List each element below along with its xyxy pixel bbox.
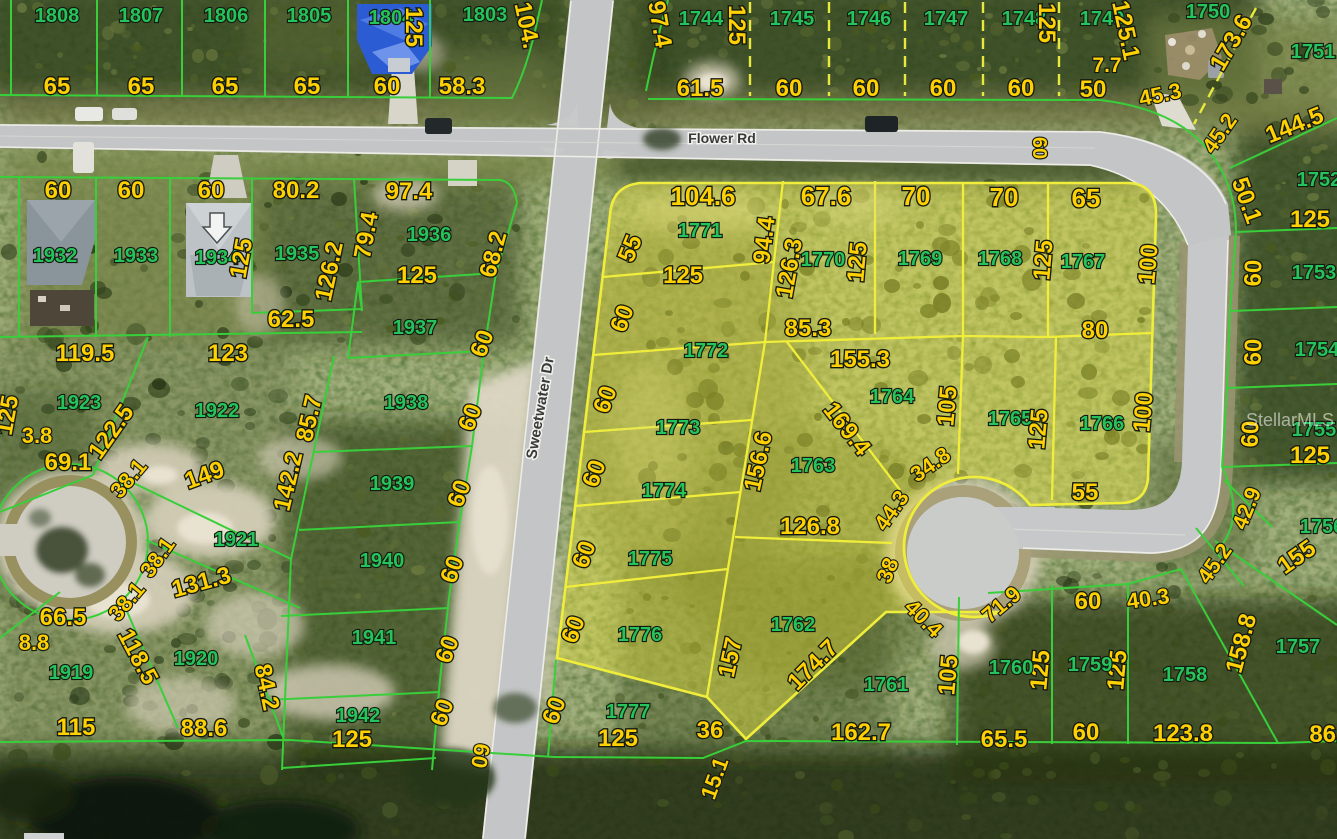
- svg-text:80: 80: [1082, 317, 1109, 344]
- svg-text:125: 125: [598, 725, 638, 752]
- svg-text:123: 123: [208, 340, 248, 367]
- svg-text:1762: 1762: [771, 614, 816, 636]
- svg-text:1920: 1920: [174, 648, 219, 670]
- svg-text:55: 55: [1072, 479, 1099, 506]
- svg-text:StellarMLS: StellarMLS: [1246, 410, 1334, 430]
- svg-text:Flower Rd: Flower Rd: [688, 130, 756, 146]
- svg-text:1746: 1746: [847, 8, 892, 30]
- svg-text:7.7: 7.7: [1092, 54, 1121, 77]
- svg-text:1923: 1923: [57, 392, 102, 414]
- svg-text:70: 70: [902, 181, 931, 211]
- svg-text:115: 115: [57, 714, 96, 741]
- svg-text:67.6: 67.6: [801, 181, 852, 211]
- svg-text:69.1: 69.1: [45, 449, 92, 476]
- svg-text:60: 60: [930, 75, 957, 102]
- svg-text:100: 100: [1128, 391, 1158, 433]
- svg-text:119.5: 119.5: [56, 340, 115, 367]
- svg-text:1805: 1805: [287, 5, 332, 27]
- svg-text:123.8: 123.8: [1153, 720, 1213, 747]
- svg-text:1921: 1921: [214, 529, 259, 551]
- svg-text:60: 60: [1240, 259, 1268, 287]
- svg-text:1808: 1808: [35, 5, 80, 27]
- svg-text:1769: 1769: [898, 248, 943, 270]
- svg-text:1761: 1761: [864, 674, 909, 696]
- svg-text:60: 60: [1008, 75, 1035, 102]
- svg-text:60: 60: [1240, 338, 1268, 366]
- svg-text:1936: 1936: [407, 224, 452, 246]
- svg-text:1932: 1932: [33, 245, 78, 267]
- svg-text:1758: 1758: [1163, 664, 1208, 686]
- svg-text:1759: 1759: [1068, 654, 1113, 676]
- svg-text:100: 100: [1133, 243, 1163, 285]
- svg-text:1753: 1753: [1292, 262, 1337, 284]
- svg-text:1939: 1939: [370, 473, 415, 495]
- svg-text:97.4: 97.4: [386, 178, 433, 205]
- svg-text:86.: 86.: [1309, 721, 1337, 748]
- svg-text:60: 60: [45, 177, 72, 204]
- svg-text:36: 36: [697, 717, 724, 744]
- svg-text:60: 60: [853, 75, 880, 102]
- svg-text:125: 125: [1033, 3, 1060, 43]
- svg-text:1922: 1922: [195, 400, 240, 422]
- svg-text:65: 65: [294, 73, 321, 100]
- svg-text:1750: 1750: [1186, 1, 1231, 23]
- svg-text:1752: 1752: [1297, 169, 1337, 191]
- svg-text:85.3: 85.3: [785, 315, 832, 342]
- svg-text:1803: 1803: [463, 4, 508, 26]
- svg-text:1763: 1763: [791, 455, 836, 477]
- svg-text:104.6: 104.6: [670, 181, 735, 211]
- svg-text:1933: 1933: [114, 245, 159, 267]
- svg-text:1764: 1764: [870, 386, 915, 408]
- svg-text:105: 105: [932, 385, 962, 427]
- svg-text:1935: 1935: [275, 243, 320, 265]
- svg-text:80.2: 80.2: [273, 177, 320, 204]
- svg-text:125: 125: [1290, 206, 1330, 233]
- svg-text:125: 125: [332, 726, 372, 753]
- svg-text:3.8: 3.8: [22, 423, 53, 448]
- svg-text:62.5: 62.5: [268, 306, 315, 333]
- svg-text:1776: 1776: [618, 624, 663, 646]
- svg-text:1942: 1942: [336, 705, 381, 727]
- svg-text:125: 125: [723, 5, 750, 45]
- svg-text:125: 125: [1028, 239, 1058, 281]
- svg-text:125: 125: [397, 262, 437, 289]
- svg-text:1767: 1767: [1061, 251, 1106, 273]
- svg-text:60: 60: [374, 73, 401, 100]
- svg-text:60: 60: [466, 742, 495, 770]
- svg-text:1768: 1768: [978, 248, 1023, 270]
- svg-text:66.5: 66.5: [40, 604, 87, 631]
- svg-text:1937: 1937: [393, 317, 438, 339]
- svg-text:8.8: 8.8: [19, 630, 50, 655]
- svg-text:1754: 1754: [1295, 339, 1337, 361]
- svg-text:1771: 1771: [678, 220, 723, 242]
- svg-text:1747: 1747: [924, 8, 969, 30]
- svg-text:65.5: 65.5: [981, 726, 1028, 753]
- svg-text:65: 65: [212, 73, 239, 100]
- svg-text:125: 125: [663, 262, 703, 289]
- svg-text:162.7: 162.7: [831, 719, 891, 746]
- svg-text:125: 125: [842, 241, 872, 283]
- svg-text:94.4: 94.4: [748, 215, 781, 265]
- svg-text:60: 60: [1028, 137, 1050, 159]
- svg-text:126.8: 126.8: [780, 513, 840, 540]
- svg-text:60: 60: [776, 75, 803, 102]
- svg-text:1760: 1760: [989, 657, 1034, 679]
- svg-text:1940: 1940: [360, 550, 405, 572]
- svg-text:1775: 1775: [628, 548, 673, 570]
- svg-text:125: 125: [400, 7, 427, 47]
- svg-text:1773: 1773: [656, 417, 701, 439]
- svg-text:1777: 1777: [606, 701, 651, 723]
- svg-text:1807: 1807: [119, 5, 164, 27]
- svg-text:60: 60: [198, 177, 225, 204]
- svg-text:60: 60: [1075, 588, 1102, 615]
- svg-text:88.6: 88.6: [181, 715, 228, 742]
- svg-text:1938: 1938: [384, 392, 429, 414]
- svg-text:65: 65: [128, 73, 155, 100]
- svg-text:70: 70: [990, 182, 1019, 212]
- svg-text:1766: 1766: [1080, 413, 1125, 435]
- svg-text:1757: 1757: [1276, 636, 1321, 658]
- svg-text:1774: 1774: [642, 480, 687, 502]
- svg-text:65: 65: [1072, 183, 1101, 213]
- svg-text:1941: 1941: [352, 627, 397, 649]
- svg-text:155.3: 155.3: [830, 346, 890, 373]
- svg-text:1772: 1772: [684, 340, 729, 362]
- svg-text:1744: 1744: [679, 8, 724, 30]
- svg-text:61.5: 61.5: [677, 75, 724, 102]
- svg-text:1806: 1806: [204, 5, 249, 27]
- svg-text:1919: 1919: [49, 662, 94, 684]
- svg-text:1745: 1745: [770, 8, 815, 30]
- svg-text:1751: 1751: [1291, 41, 1336, 63]
- svg-text:60: 60: [1073, 719, 1100, 746]
- svg-text:58.3: 58.3: [439, 73, 486, 100]
- svg-text:60: 60: [118, 177, 145, 204]
- svg-text:125: 125: [1023, 408, 1053, 450]
- svg-text:1770: 1770: [801, 249, 846, 271]
- svg-text:65: 65: [44, 73, 71, 100]
- svg-text:50: 50: [1080, 76, 1107, 103]
- svg-text:125: 125: [1290, 442, 1330, 469]
- svg-text:105: 105: [933, 654, 963, 696]
